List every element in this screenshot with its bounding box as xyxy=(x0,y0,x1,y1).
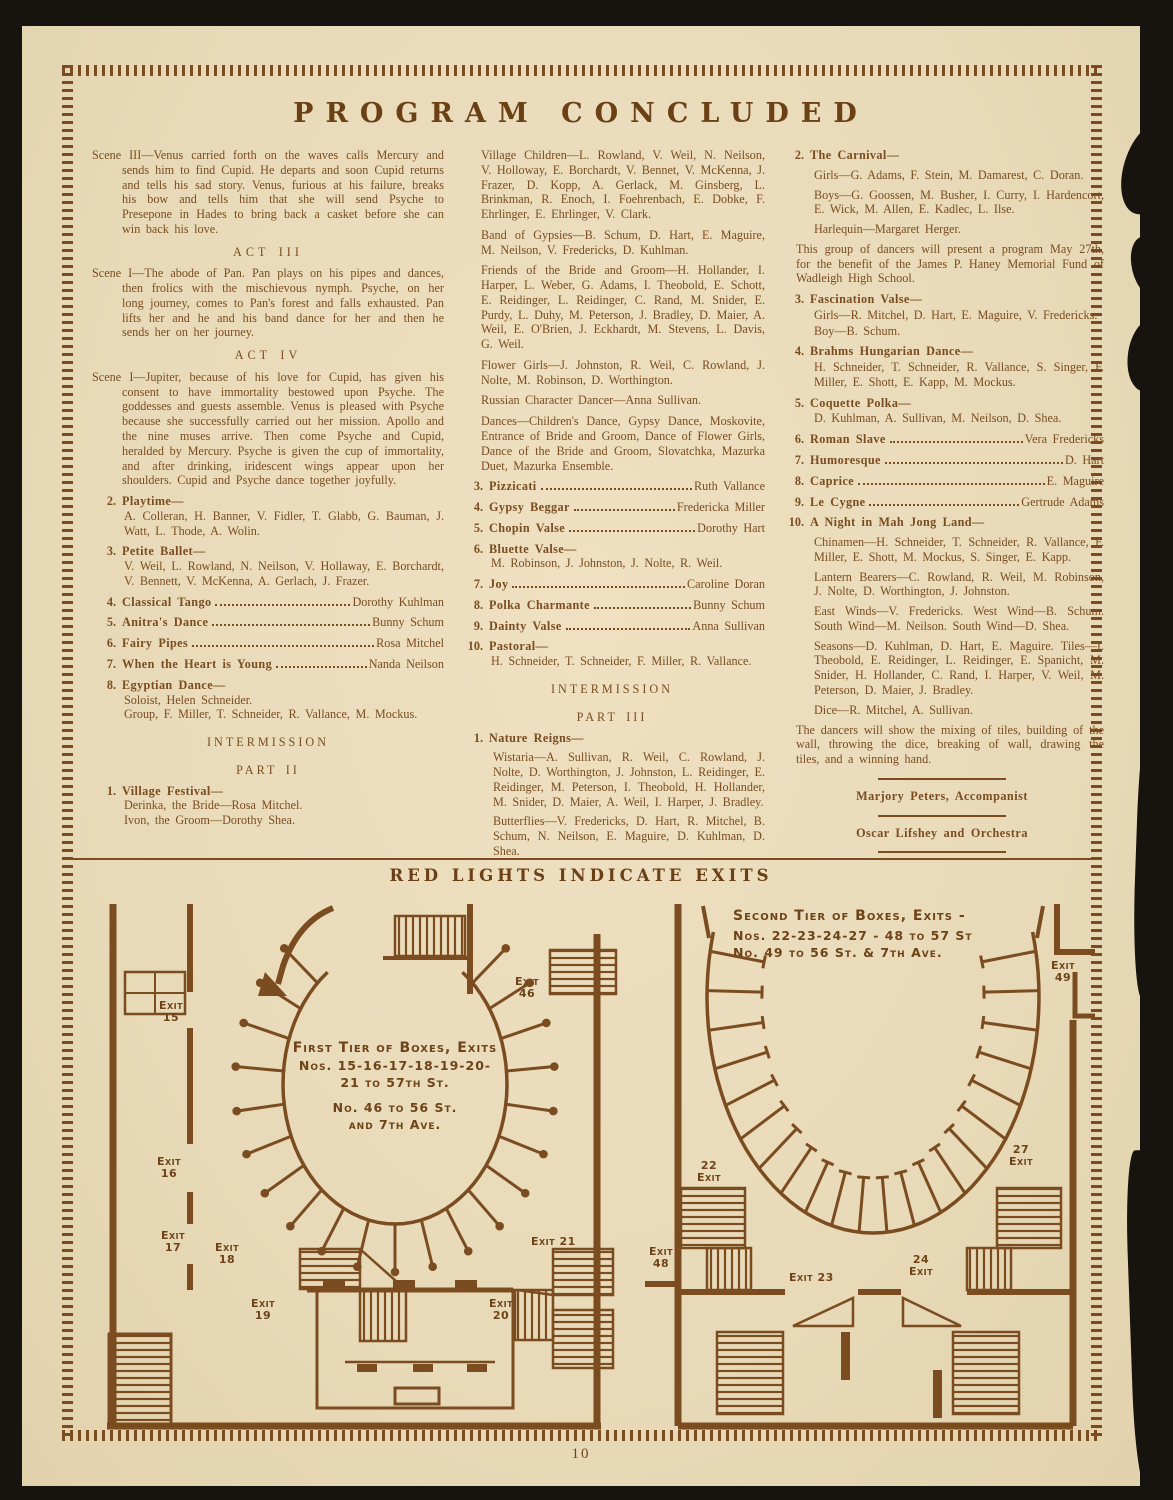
item-cast: A. Colleran, H. Banner, V. Fidler, T. Gl… xyxy=(92,509,444,539)
dotted-leader xyxy=(215,604,350,606)
cast-paragraph: Friends of the Bride and Groom—H. Hollan… xyxy=(481,263,765,352)
cast-subgroup: Girls—R. Mitchel, D. Hart, E. Maguire, V… xyxy=(814,308,1104,323)
dotted-leader xyxy=(541,488,692,490)
paper-sheet: PROGRAM CONCLUDED Scene III—Venus carrie… xyxy=(22,26,1140,1486)
cast-paragraph: Band of Gypsies—B. Schum, D. Hart, E. Ma… xyxy=(481,228,765,258)
part3-heading: PART III xyxy=(459,710,765,725)
dotted-leader xyxy=(212,624,370,626)
program-item: 6.Bluette Valse— M. Robinson, J. Johnsto… xyxy=(459,542,765,572)
dotted-leader xyxy=(594,607,691,609)
program-item: 10.Pastoral— H. Schneider, T. Schneider,… xyxy=(459,639,765,669)
item-title: Petite Ballet— xyxy=(122,544,206,559)
column-2: Village Children—L. Rowland, V. Weil, N.… xyxy=(459,148,765,856)
first-tier-caption: First Tier of Boxes, Exits Nos. 15-16-17… xyxy=(260,1040,530,1132)
cast-paragraph: Dances—Children's Dance, Gypsy Dance, Mo… xyxy=(481,414,765,473)
dotted-leader xyxy=(890,441,1023,443)
column-3: 2.The Carnival— Girls—G. Adams, F. Stein… xyxy=(780,148,1104,856)
act3-scene1-paragraph: Scene I—The abode of Pan. Pan plays on h… xyxy=(92,266,444,340)
program-item: 4.Gypsy BeggarFredericka Miller xyxy=(459,500,765,515)
cast-subgroup: Boy—B. Schum. xyxy=(814,324,1104,339)
stitched-border-top xyxy=(62,65,1102,76)
dotted-leader xyxy=(574,509,675,511)
exit-label: Exit 23 xyxy=(789,1272,834,1284)
intermission-heading: INTERMISSION xyxy=(92,735,444,750)
first-tier-exit-diagram: Exit 15 Exit 16 Exit 17 Exit 18 Exit 19 … xyxy=(95,892,630,1440)
program-item: 6.Roman SlaveVera Fredericks xyxy=(780,432,1104,447)
page-title: PROGRAM CONCLUDED xyxy=(22,98,1140,129)
cast-subgroup: D. Kuhlman, A. Sullivan, M. Neilson, D. … xyxy=(814,411,1104,426)
program-item: 2.Playtime— A. Colleran, H. Banner, V. F… xyxy=(92,494,444,538)
exit-label: Exit 16 xyxy=(149,1156,189,1180)
exit-label: 22 Exit xyxy=(689,1160,729,1184)
page-number: 10 xyxy=(22,1446,1140,1463)
dotted-leader xyxy=(512,586,685,588)
cast-subgroup: Lantern Bearers—C. Rowland, R. Weil, M. … xyxy=(814,570,1104,600)
rule xyxy=(878,778,1006,780)
program-item: 1.Village Festival— Derinka, the Bride—R… xyxy=(92,784,444,828)
cast-subgroup: Seasons—D. Kuhlman, D. Hart, E. Maguire.… xyxy=(814,639,1104,698)
program-item: 5.Coquette Polka— D. Kuhlman, A. Sulliva… xyxy=(780,396,1104,427)
column-1: Scene III—Venus carried forth on the wav… xyxy=(92,148,444,856)
program-item: 7.When the Heart is YoungNanda Neilson xyxy=(92,657,444,672)
program-item: 6.Fairy PipesRosa Mitchel xyxy=(92,636,444,651)
program-item: 4.Classical TangoDorothy Kuhlman xyxy=(92,595,444,610)
program-item: 1.Nature Reigns— Wistaria—A. Sullivan, R… xyxy=(459,731,765,857)
dotted-leader xyxy=(192,645,374,647)
cast-subgroup: East Winds—V. Fredericks. West Wind—B. S… xyxy=(814,604,1104,634)
cast-subgroup: Butterflies—V. Fredericks, D. Hart, R. M… xyxy=(493,814,765,856)
cast-paragraph: Flower Girls—J. Johnston, R. Weil, C. Ro… xyxy=(481,358,765,388)
orchestra-credit: Oscar Lifshey and Orchestra xyxy=(780,826,1104,841)
exit-label: Exit 20 xyxy=(481,1298,521,1322)
cast-subgroup: Dice—R. Mitchel, A. Sullivan. xyxy=(814,703,1104,718)
exit-label: 24 Exit xyxy=(901,1254,941,1278)
cast-subgroup: Harlequin—Margaret Herger. xyxy=(814,222,1104,237)
program-item: 2.The Carnival— Girls—G. Adams, F. Stein… xyxy=(780,148,1104,286)
exit-label: Exit 46 xyxy=(507,976,547,1000)
program-item: 3.Fascination Valse— Girls—R. Mitchel, D… xyxy=(780,292,1104,338)
program-item: 3.PizzicatiRuth Vallance xyxy=(459,479,765,494)
item-cast: V. Weil, L. Rowland, N. Neilson, V. Holl… xyxy=(92,559,444,589)
program-item: 3.Petite Ballet— V. Weil, L. Rowland, N.… xyxy=(92,544,444,588)
program-item: 9.Dainty ValseAnna Sullivan xyxy=(459,619,765,634)
stitched-border-left xyxy=(62,65,73,1441)
exit-label: Exit 48 xyxy=(641,1246,681,1270)
exit-label: Exit 21 xyxy=(531,1236,576,1248)
program-item: 8.CapriceE. Maguire xyxy=(780,474,1104,489)
act3-heading: ACT III xyxy=(92,245,444,260)
exits-heading: RED LIGHTS INDICATE EXITS xyxy=(22,866,1140,885)
cast-subgroup: Wistaria—A. Sullivan, R. Weil, C. Rowlan… xyxy=(493,750,765,809)
dotted-leader xyxy=(885,462,1063,464)
cast-subgroup: Chinamen—H. Schneider, T. Schneider, R. … xyxy=(814,535,1104,565)
note-paragraph: This group of dancers will present a pro… xyxy=(796,242,1104,286)
dotted-leader xyxy=(276,666,367,668)
dotted-leader xyxy=(569,530,695,532)
program-item: 8.Egyptian Dance— Soloist, Helen Schneid… xyxy=(92,678,444,722)
item-number: 2. xyxy=(92,494,116,509)
rule xyxy=(878,815,1006,817)
program-item: 7.JoyCaroline Doran xyxy=(459,577,765,592)
dotted-leader xyxy=(566,628,691,630)
exit-label: Exit 17 xyxy=(153,1230,193,1254)
exit-label: Exit 15 xyxy=(151,1000,191,1024)
dotted-leader xyxy=(858,483,1045,485)
dotted-leader xyxy=(869,504,1019,506)
program-item: 8.Polka CharmanteBunny Schum xyxy=(459,598,765,613)
item-title: Playtime— xyxy=(122,494,184,509)
program-item: 5.Chopin ValseDorothy Hart xyxy=(459,521,765,536)
program-item: 9.Le CygneGertrude Adams xyxy=(780,495,1104,510)
exit-label: 27 Exit xyxy=(1001,1144,1041,1168)
intermission-heading: INTERMISSION xyxy=(459,682,765,697)
program-item: 7.HumoresqueD. Hart xyxy=(780,453,1104,468)
scene3-paragraph: Scene III—Venus carried forth on the wav… xyxy=(92,148,444,237)
cast-paragraph: Russian Character Dancer—Anna Sullivan. xyxy=(481,393,765,408)
act4-scene1-paragraph: Scene I—Jupiter, because of his love for… xyxy=(92,370,444,488)
program-item: 10.A Night in Mah Jong Land— Chinamen—H.… xyxy=(780,515,1104,766)
accompanist-credit: Marjory Peters, Accompanist xyxy=(780,789,1104,804)
exit-label: Exit 49 xyxy=(1043,960,1083,984)
scanned-program-page: { "colors": {"paper":"#e9dbba","ink":"#7… xyxy=(0,0,1173,1500)
cast-subgroup: Girls—G. Adams, F. Stein, M. Damarest, C… xyxy=(814,168,1104,183)
item-number: 3. xyxy=(92,544,116,559)
cast-subgroup: H. Schneider, T. Schneider, R. Vallance,… xyxy=(814,360,1104,390)
note-paragraph: The dancers will show the mixing of tile… xyxy=(796,723,1104,767)
cast-paragraph: Village Children—L. Rowland, V. Weil, N.… xyxy=(481,148,765,222)
part2-heading: PART II xyxy=(92,763,444,778)
cast-subgroup: Boys—G. Goossen, M. Busher, I. Curry, I.… xyxy=(814,188,1104,218)
program-columns: Scene III—Venus carried forth on the wav… xyxy=(92,148,1104,856)
second-tier-exit-diagram: Exit 49 22 Exit Exit 48 Exit 23 24 Exit … xyxy=(645,892,1107,1440)
program-item: 5.Anitra's DanceBunny Schum xyxy=(92,615,444,630)
section-divider-rule xyxy=(70,858,1092,860)
second-tier-caption: Second Tier of Boxes, Exits - Nos. 22-23… xyxy=(733,908,1003,960)
rule xyxy=(878,851,1006,853)
act4-heading: ACT IV xyxy=(92,348,444,363)
program-item: 4.Brahms Hungarian Dance— H. Schneider, … xyxy=(780,344,1104,389)
exit-label: Exit 18 xyxy=(207,1242,247,1266)
exit-label: Exit 19 xyxy=(243,1298,283,1322)
